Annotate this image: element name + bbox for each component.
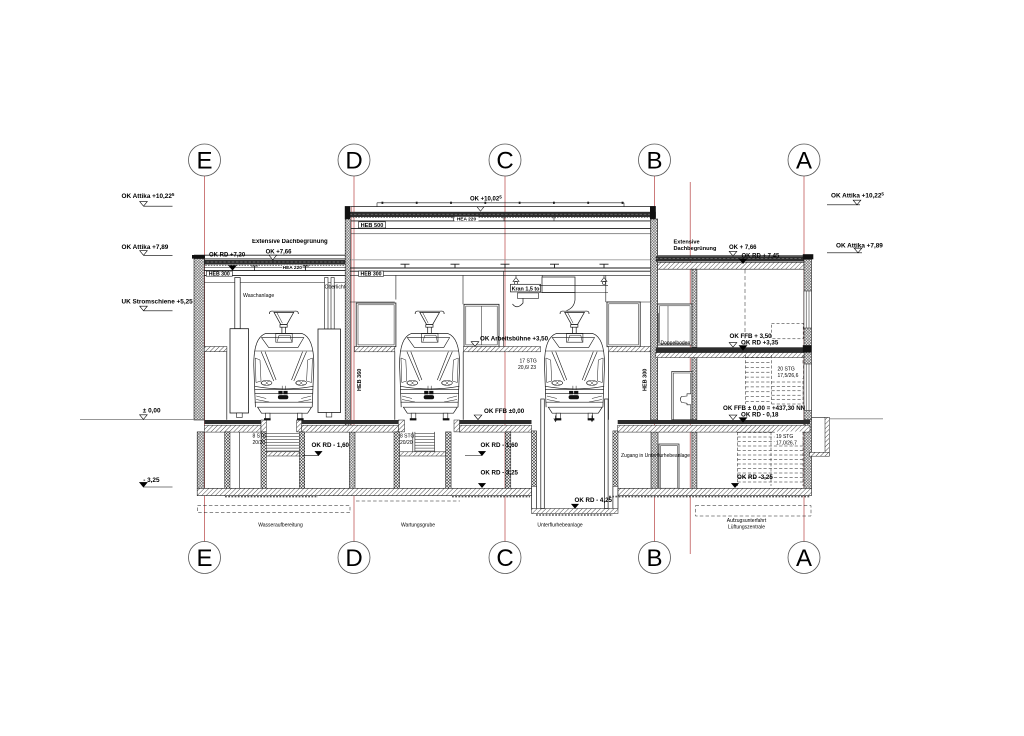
svg-text:Waschanlage: Waschanlage — [243, 293, 274, 299]
svg-text:HEA 220: HEA 220 — [457, 217, 477, 223]
svg-text:OK RD - 3,25: OK RD - 3,25 — [481, 470, 519, 477]
svg-text:17,0/26,7: 17,0/26,7 — [776, 441, 797, 447]
svg-text:HEB 360: HEB 360 — [357, 369, 363, 391]
svg-text:A: A — [796, 148, 812, 175]
svg-text:8 STG: 8 STG — [253, 434, 268, 440]
svg-text:HEB 500: HEB 500 — [361, 223, 384, 229]
svg-text:± 0,00: ± 0,00 — [143, 407, 161, 414]
svg-text:Kran 1,5 to: Kran 1,5 to — [512, 286, 541, 292]
svg-text:E: E — [196, 148, 212, 175]
svg-text:Extensive Dachbegrünung: Extensive Dachbegrünung — [252, 239, 328, 245]
svg-text:C: C — [496, 148, 513, 175]
svg-text:Aufzugsunterfahrt: Aufzugsunterfahrt — [727, 518, 767, 524]
svg-text:20 STG: 20 STG — [778, 367, 795, 373]
svg-text:OK RD -3,25: OK RD -3,25 — [737, 474, 773, 481]
svg-text:Doppelboden: Doppelboden — [661, 341, 691, 347]
svg-text:E: E — [196, 545, 212, 572]
svg-text:C: C — [496, 545, 513, 572]
svg-text:HEB 300: HEB 300 — [209, 271, 230, 277]
svg-text:OK RD - 4,25: OK RD - 4,25 — [575, 497, 613, 504]
svg-text:Dachbegrünung: Dachbegrünung — [674, 246, 717, 252]
svg-text:19 STG: 19 STG — [776, 434, 793, 440]
svg-text:OK RD +7,20: OK RD +7,20 — [209, 253, 246, 259]
svg-text:HEB 300: HEB 300 — [360, 272, 381, 278]
svg-text:Lüftungszentrale: Lüftungszentrale — [728, 524, 765, 530]
svg-text:17,5/26,6: 17,5/26,6 — [778, 373, 799, 379]
svg-text:OK +7,66: OK +7,66 — [266, 249, 293, 255]
svg-text:20/20: 20/20 — [253, 440, 266, 446]
svg-text:17 STG: 17 STG — [520, 359, 537, 365]
svg-text:OK FFB ±0,00: OK FFB ±0,00 — [484, 408, 525, 415]
svg-text:HEA 220: HEA 220 — [283, 265, 303, 271]
svg-text:Wasseraufbereitung: Wasseraufbereitung — [258, 523, 303, 529]
svg-text:OK Arbeitsbühne +3,50: OK Arbeitsbühne +3,50 — [480, 336, 549, 343]
svg-text:A: A — [796, 545, 812, 572]
svg-text:OK Attika +10,225: OK Attika +10,225 — [831, 192, 884, 200]
svg-text:HEB 300: HEB 300 — [643, 369, 649, 391]
svg-text:OK RD - 1,60: OK RD - 1,60 — [312, 442, 350, 449]
svg-text:Zugang in Unterflurhebeanlage: Zugang in Unterflurhebeanlage — [621, 453, 690, 459]
svg-text:20/20: 20/20 — [400, 440, 413, 446]
svg-text:B: B — [646, 545, 662, 572]
svg-text:UK Stromschiene +5,25: UK Stromschiene +5,25 — [122, 299, 194, 306]
svg-text:B: B — [646, 148, 662, 175]
svg-text:D: D — [345, 148, 362, 175]
svg-text:OK RD - 1,60: OK RD - 1,60 — [481, 442, 519, 449]
svg-text:OK + 7,66: OK + 7,66 — [729, 245, 757, 251]
svg-text:OK Attika +10,225: OK Attika +10,225 — [122, 192, 175, 200]
svg-text:Extensive: Extensive — [674, 240, 700, 246]
svg-text:D: D — [345, 545, 362, 572]
svg-text:Oberlicht: Oberlicht — [325, 285, 346, 291]
svg-text:OK +10,025: OK +10,025 — [470, 195, 502, 203]
svg-text:8 STG: 8 STG — [400, 434, 415, 440]
svg-text:Wartungsgrube: Wartungsgrube — [401, 523, 435, 529]
svg-text:OK RD + 7,45: OK RD + 7,45 — [742, 253, 781, 259]
svg-text:Unterflurhebeanlage: Unterflurhebeanlage — [537, 523, 583, 529]
svg-text:OK Attika +7,89: OK Attika +7,89 — [122, 244, 169, 251]
svg-text:20,6/ 23: 20,6/ 23 — [518, 365, 536, 371]
